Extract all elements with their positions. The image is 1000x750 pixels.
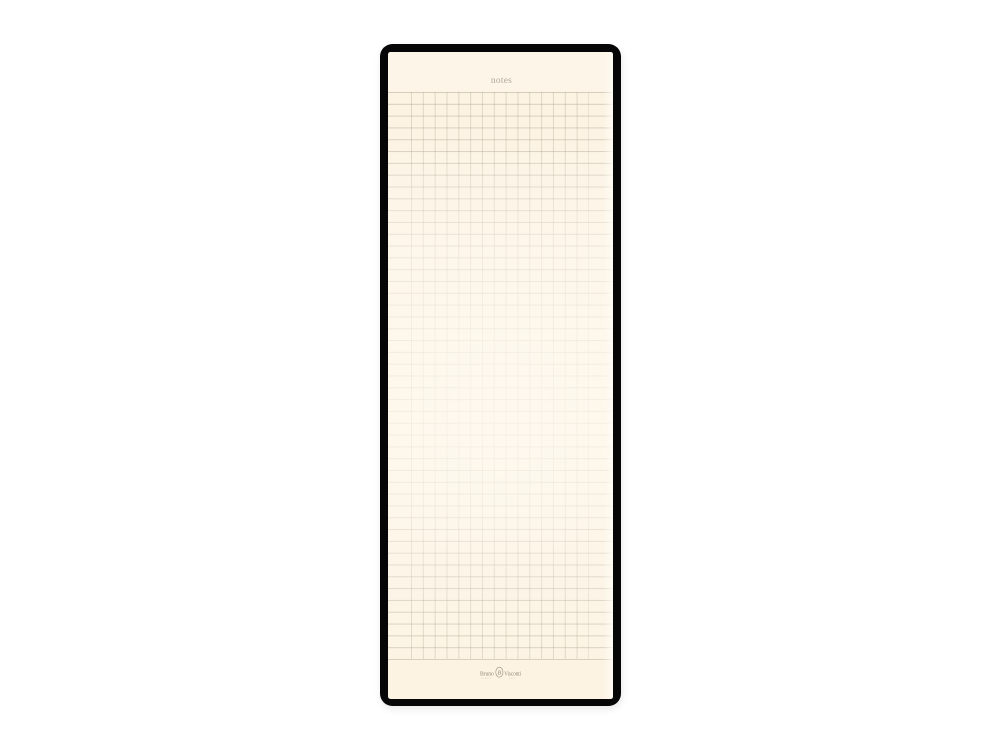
- svg-text:B: B: [497, 671, 501, 677]
- svg-text:1863: 1863: [508, 677, 516, 680]
- svg-text:SINCE: SINCE: [481, 677, 491, 680]
